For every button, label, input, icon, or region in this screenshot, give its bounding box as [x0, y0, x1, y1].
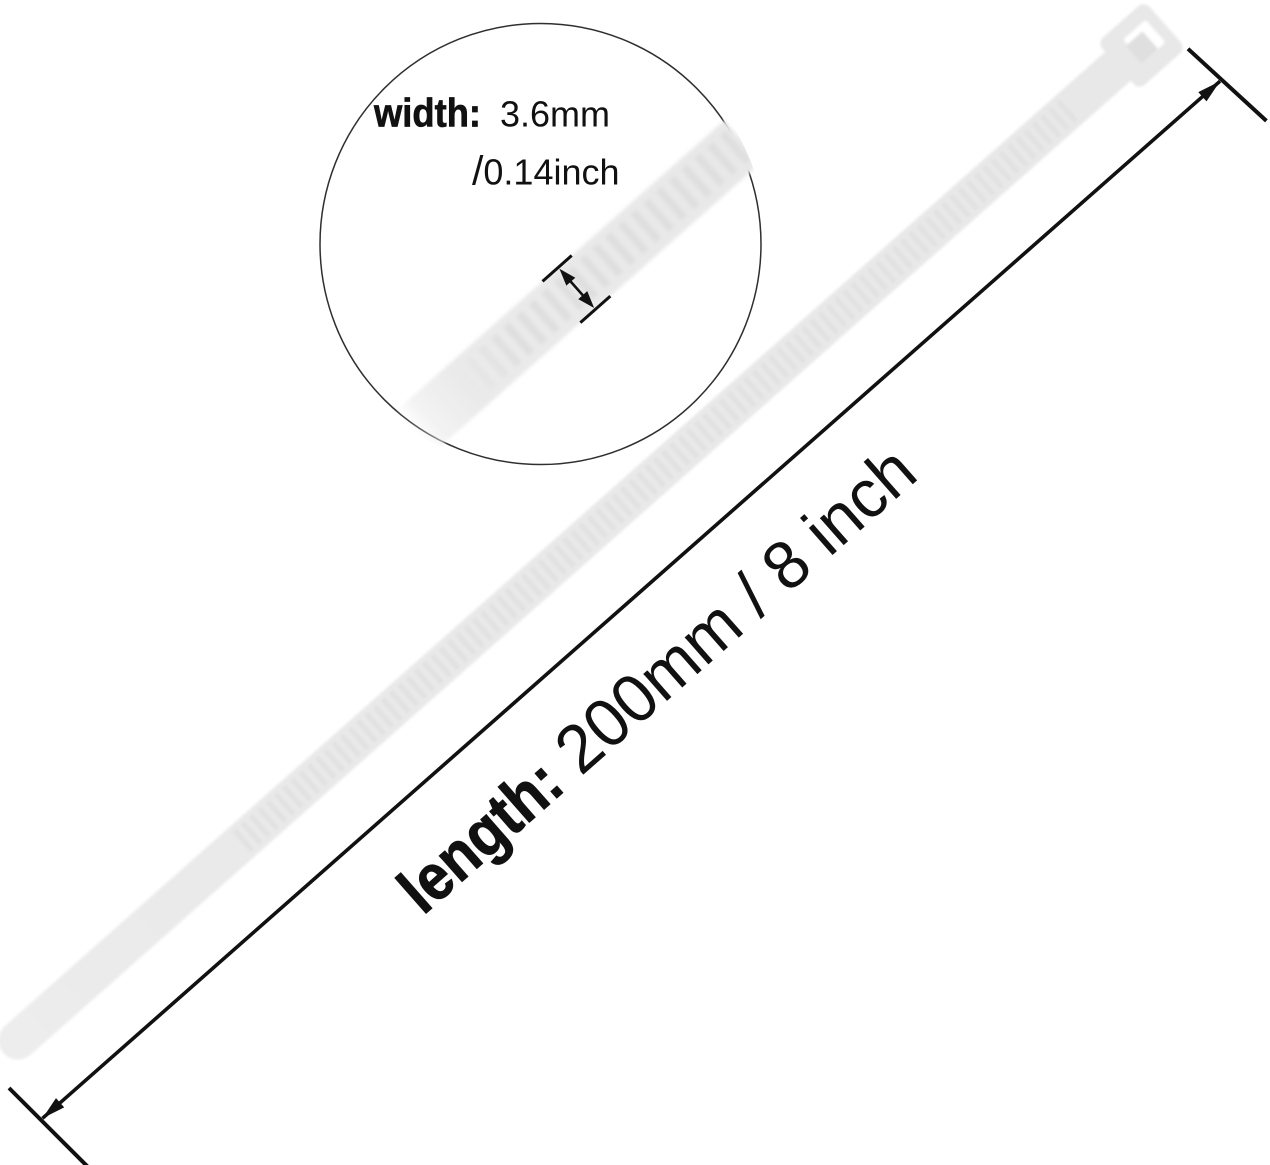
svg-text:length: 200mm / 8 inch: length: 200mm / 8 inch — [383, 432, 931, 927]
svg-text:3.6mm: 3.6mm — [500, 94, 610, 135]
svg-text:/0.14inch: /0.14inch — [472, 148, 620, 194]
svg-text:width:: width: — [373, 92, 481, 136]
